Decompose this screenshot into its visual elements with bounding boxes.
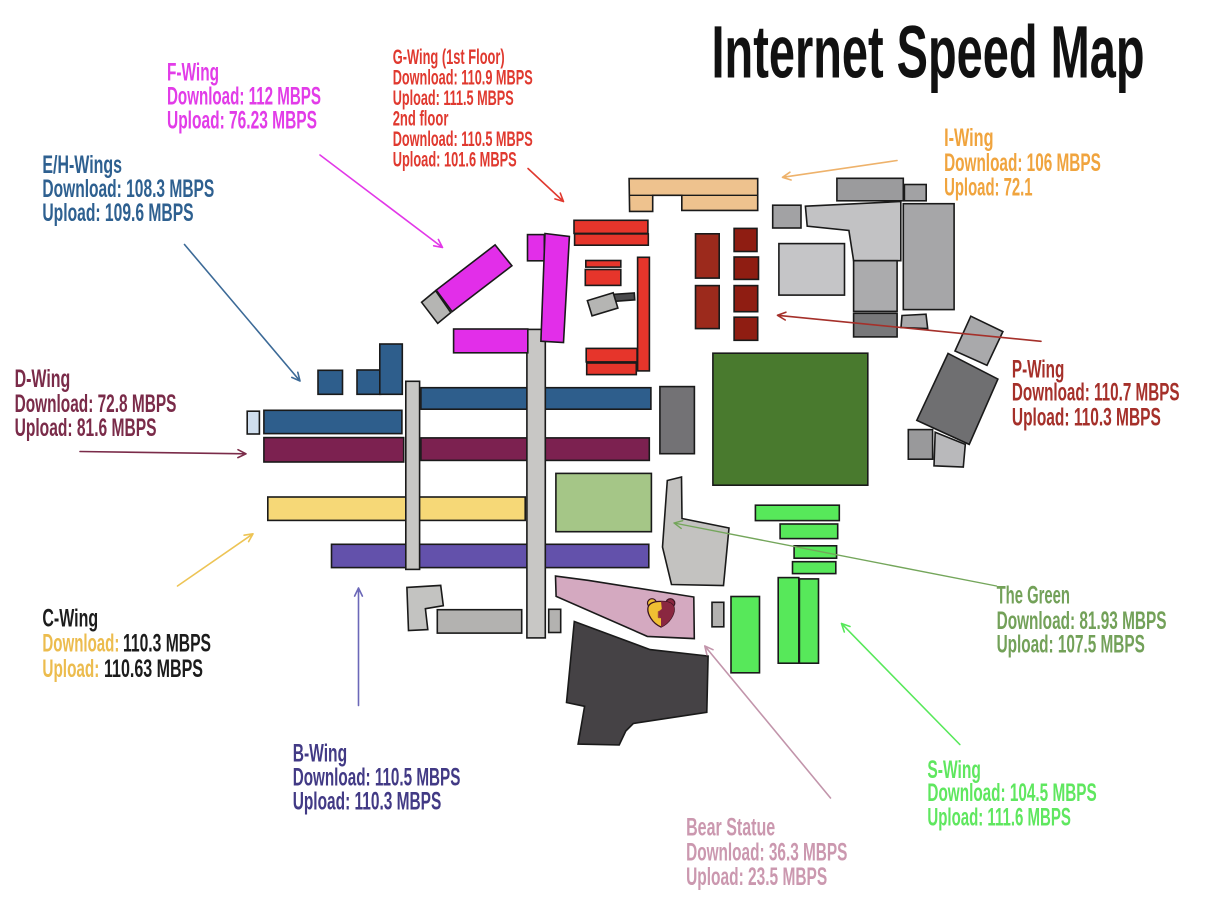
- svg-text:Upload: 23.5 MBPS: Upload: 23.5 MBPS: [686, 863, 827, 891]
- svg-text:The Green: The Green: [997, 581, 1070, 609]
- svg-text:Upload: 110.3 MBPS: Upload: 110.3 MBPS: [293, 788, 442, 816]
- svg-text:Download: 110.5 MBPS: Download: 110.5 MBPS: [393, 128, 533, 151]
- svg-text:Upload: 76.23 MBPS: Upload: 76.23 MBPS: [167, 106, 317, 134]
- svg-text:Upload: 107.5 MBPS: Upload: 107.5 MBPS: [997, 631, 1145, 659]
- svg-text:Upload:110.63 MBPS: Upload:110.63 MBPS: [42, 655, 203, 683]
- svg-text:Upload: 101.6 MBPS: Upload: 101.6 MBPS: [393, 149, 517, 172]
- svg-text:Upload: 110.3 MBPS: Upload: 110.3 MBPS: [1012, 404, 1161, 432]
- svg-text:Upload: 111.6 MBPS: Upload: 111.6 MBPS: [927, 803, 1071, 831]
- svg-text:Internet Speed Map: Internet Speed Map: [712, 11, 1145, 94]
- svg-text:Download: 110.7 MBPS: Download: 110.7 MBPS: [1012, 378, 1180, 406]
- svg-text:Download:110.3 MBPS: Download:110.3 MBPS: [42, 630, 211, 658]
- svg-text:Upload: 109.6 MBPS: Upload: 109.6 MBPS: [42, 199, 193, 227]
- svg-text:D-Wing: D-Wing: [15, 365, 71, 393]
- svg-text:C-Wing: C-Wing: [42, 604, 98, 632]
- svg-text:Upload: 72.1: Upload: 72.1: [944, 173, 1033, 201]
- svg-text:Upload: 81.6 MBPS: Upload: 81.6 MBPS: [15, 414, 157, 442]
- svg-text:Download: 110.9 MBPS: Download: 110.9 MBPS: [393, 67, 533, 90]
